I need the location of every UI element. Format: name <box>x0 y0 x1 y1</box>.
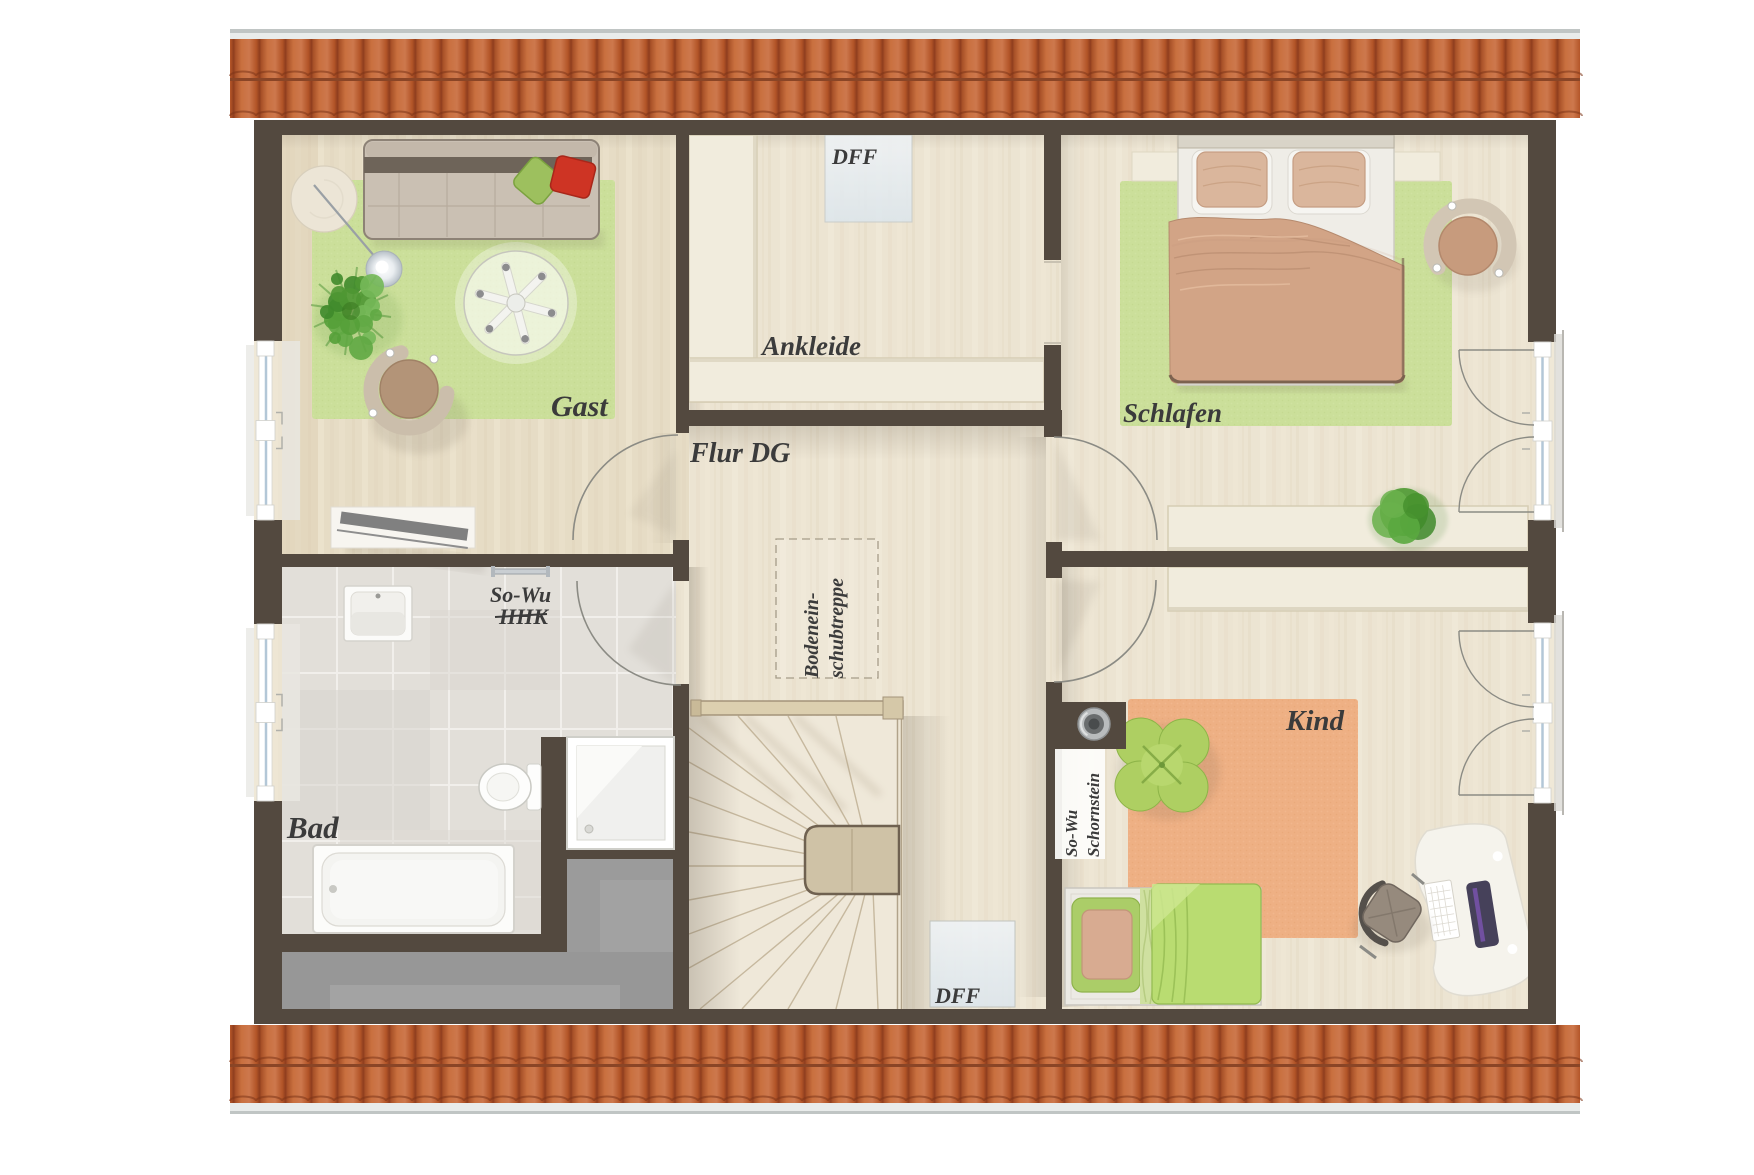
svg-text:Schornstein: Schornstein <box>1084 773 1103 857</box>
svg-text:Kind: Kind <box>1285 705 1345 737</box>
svg-text:Schlafen: Schlafen <box>1123 398 1222 428</box>
svg-text:DFF: DFF <box>934 983 981 1008</box>
svg-text:Ankleide: Ankleide <box>760 331 861 361</box>
svg-text:DFF: DFF <box>831 144 878 169</box>
svg-text:Gast: Gast <box>551 390 609 423</box>
svg-text:Flur DG: Flur DG <box>689 438 790 469</box>
svg-text:schubtreppe: schubtreppe <box>826 578 848 679</box>
svg-text:So-Wu: So-Wu <box>1062 810 1081 857</box>
svg-text:Bodenein-: Bodenein- <box>801 592 823 679</box>
svg-text:Bad: Bad <box>286 810 339 845</box>
